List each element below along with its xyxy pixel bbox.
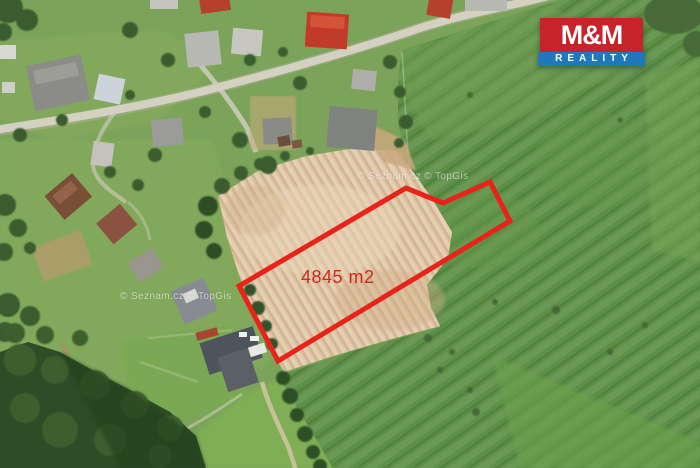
aerial-map: © Seznam.cz © TopGis © Seznam.cz © TopGi… xyxy=(0,0,700,468)
mm-reality-logo: M&M REALITY xyxy=(538,18,645,66)
watermark-bottom: © Seznam.cz © TopGis xyxy=(120,291,231,302)
watermark-top: © Seznam.cz © TopGis xyxy=(357,171,468,182)
logo-mm-text: M&M xyxy=(540,18,643,52)
logo-reality-text: REALITY xyxy=(538,52,645,66)
aerial-photo xyxy=(0,0,700,468)
plot-area-label: 4845 m2 xyxy=(301,267,375,288)
